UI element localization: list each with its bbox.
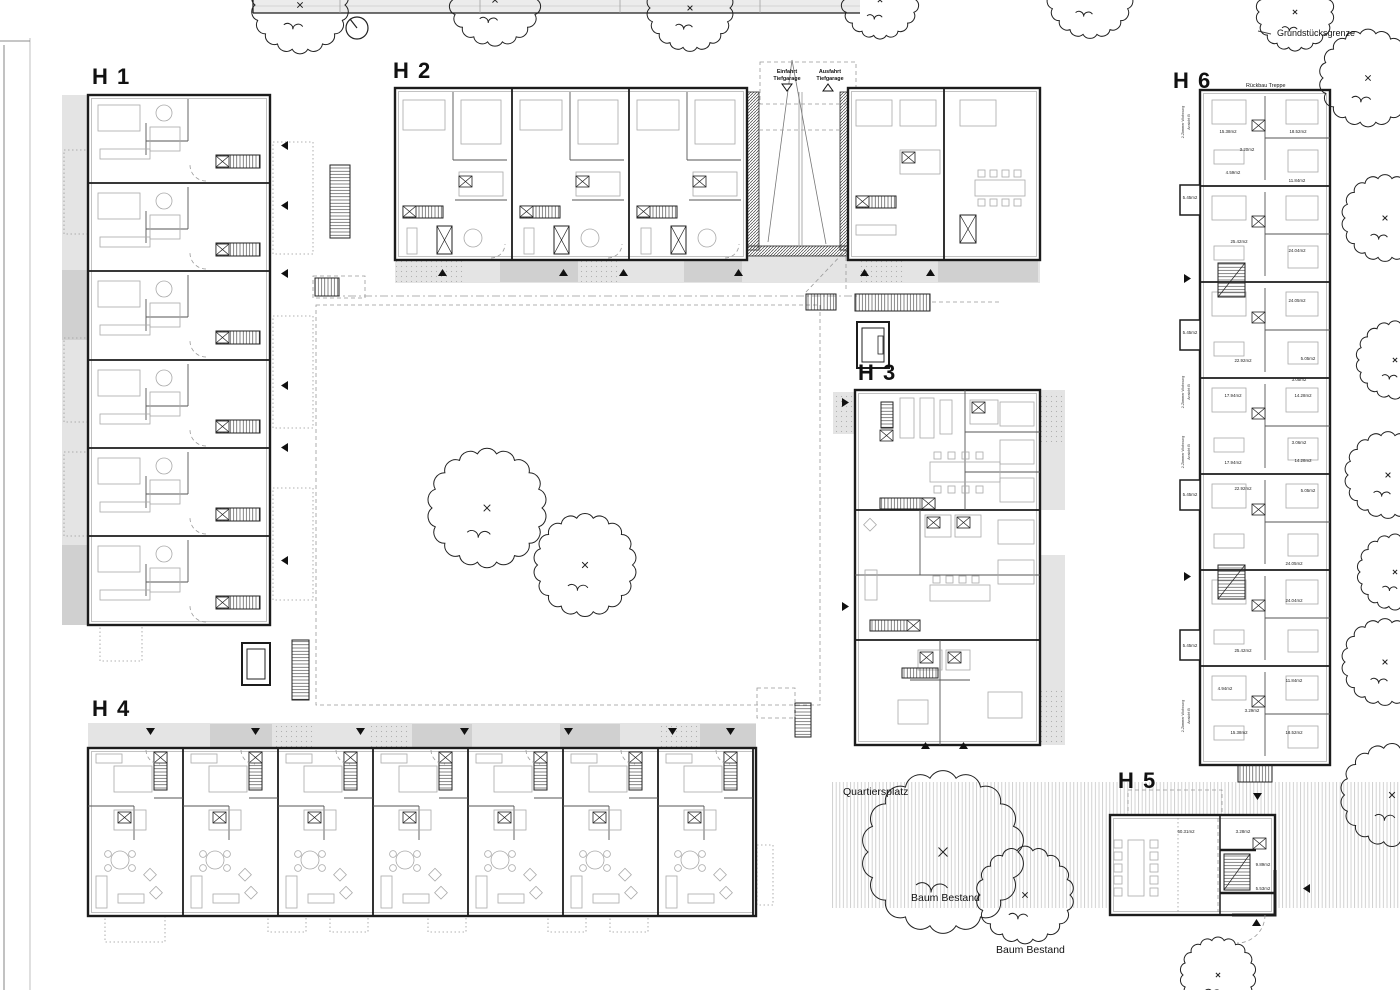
room-area-label: 9.89m2: [1256, 862, 1271, 867]
room-area-label: 5.05m2: [1301, 488, 1316, 493]
tree-icon: [428, 448, 546, 567]
room-area-label: 22.92m2: [1234, 486, 1252, 491]
room-area-label: 3.28m2: [1236, 829, 1251, 834]
tree-icon: [1356, 321, 1400, 399]
room-area-label: 17.94m2: [1224, 460, 1242, 465]
building-label-h5: H 5: [1118, 768, 1157, 793]
tree-icon: [1357, 534, 1400, 610]
room-area-label: 3.20m2: [1240, 147, 1255, 152]
room-area-label: 4.94m2: [1218, 686, 1233, 691]
walkway-strip-h4: [88, 723, 756, 748]
room-area-label: 17.94m2: [1224, 393, 1242, 398]
room-area-label: 3.29m2: [1245, 708, 1260, 713]
tree-icon: [1345, 432, 1400, 519]
room-area-label: 5.05m2: [1301, 356, 1316, 361]
tree-icon: [534, 513, 636, 616]
room-area-label: 25.42m2: [1230, 239, 1248, 244]
room-area-label: 18.52m2: [1289, 129, 1307, 134]
h6-note-label: Rückbau Treppe: [1246, 83, 1286, 89]
garage-entry-label: Einfahrt: [777, 69, 798, 75]
room-area-label: 11.84m2: [1289, 178, 1306, 183]
building-label-h6: H 6: [1173, 68, 1212, 93]
neighbour-building-edge: [253, 0, 860, 13]
apartment-type-label: 2-Zimmer Wohnung: [1181, 436, 1185, 469]
room-area-label: 24.04m2: [1288, 248, 1306, 253]
property-boundary-label: Grundstücksgrenze: [1277, 28, 1355, 38]
room-area-label: 4.59m2: [1226, 170, 1241, 175]
apartment-type-label: Ansicht B: [1187, 384, 1191, 400]
apartment-type-label: 2-Zimmer Wohnung: [1181, 106, 1185, 139]
tree-icon: [1320, 29, 1400, 127]
room-area-label: 11.84m2: [1286, 678, 1303, 683]
apartment-type-label: 2-Zimmer Wohnung: [1181, 700, 1185, 733]
room-area-label: 14.28m2: [1294, 458, 1312, 463]
building-label-h2: H 2: [393, 58, 432, 83]
apartment-type-label: 2-Zimmer Wohnung: [1181, 376, 1185, 409]
building-h3: [855, 390, 1040, 745]
room-area-label: 25.42m2: [1234, 648, 1252, 653]
tree-icon: [1180, 937, 1255, 990]
building-label-h1: H 1: [92, 64, 131, 89]
building-h4: [88, 748, 756, 916]
room-area-label: 15.38m2: [1219, 129, 1237, 134]
garage-exit-label: Ausfahrt: [819, 69, 841, 75]
tree-icon: [1342, 175, 1400, 262]
room-area-label: 14.28m2: [1294, 393, 1312, 398]
north-indicator-icon: [346, 17, 368, 39]
room-area-label: 5.45m2: [1183, 643, 1198, 648]
garage-entry-label: Tiefgarage: [773, 76, 800, 82]
tree-icon: [1047, 0, 1133, 38]
room-area-label: 5.45m2: [1183, 195, 1198, 200]
room-area-label: 5.53m2: [1256, 886, 1271, 891]
room-area-label: 60.31m2: [1177, 829, 1195, 834]
room-area-label: 3.05m2: [1292, 377, 1307, 382]
room-area-label: 18.52m2: [1285, 730, 1303, 735]
room-area-label: 24.05m2: [1288, 298, 1306, 303]
building-h2: [395, 88, 1040, 260]
room-area-label: 15.38m2: [1230, 730, 1248, 735]
tree-icon: [1256, 0, 1333, 51]
apartment-type-label: Ansicht B: [1187, 444, 1191, 460]
tree-stock-label: Baum Bestand: [996, 944, 1065, 956]
site-plan-canvas: H 1 H 2 H 3 H 4 H 5 H 6 Grundstücksgrenz…: [0, 0, 1400, 990]
room-area-label: 5.45m2: [1183, 330, 1198, 335]
tree-stock-label: Baum Bestand: [911, 892, 980, 904]
room-area-label: 24.04m2: [1285, 598, 1303, 603]
apartment-type-label: Ansicht B: [1187, 114, 1191, 130]
garage-exit-label: Tiefgarage: [816, 76, 843, 82]
room-area-label: 24.05m2: [1285, 561, 1303, 566]
building-h6: [1180, 90, 1330, 782]
apartment-type-label: Ansicht B: [1187, 708, 1191, 724]
building-label-h4: H 4: [92, 696, 131, 721]
garage-ramp: [747, 60, 856, 256]
building-label-h3: H 3: [858, 360, 897, 385]
garage-entry-arrow-icon: [782, 84, 792, 91]
room-area-label: 22.92m2: [1234, 358, 1252, 363]
building-h1: [88, 95, 270, 625]
garage-exit-arrow-icon: [823, 84, 833, 91]
tree-icon: [1342, 619, 1400, 706]
room-area-label: 3.06m2: [1292, 440, 1307, 445]
room-area-label: 5.45m2: [1183, 492, 1198, 497]
plaza-label: Quartiersplatz: [843, 786, 908, 798]
